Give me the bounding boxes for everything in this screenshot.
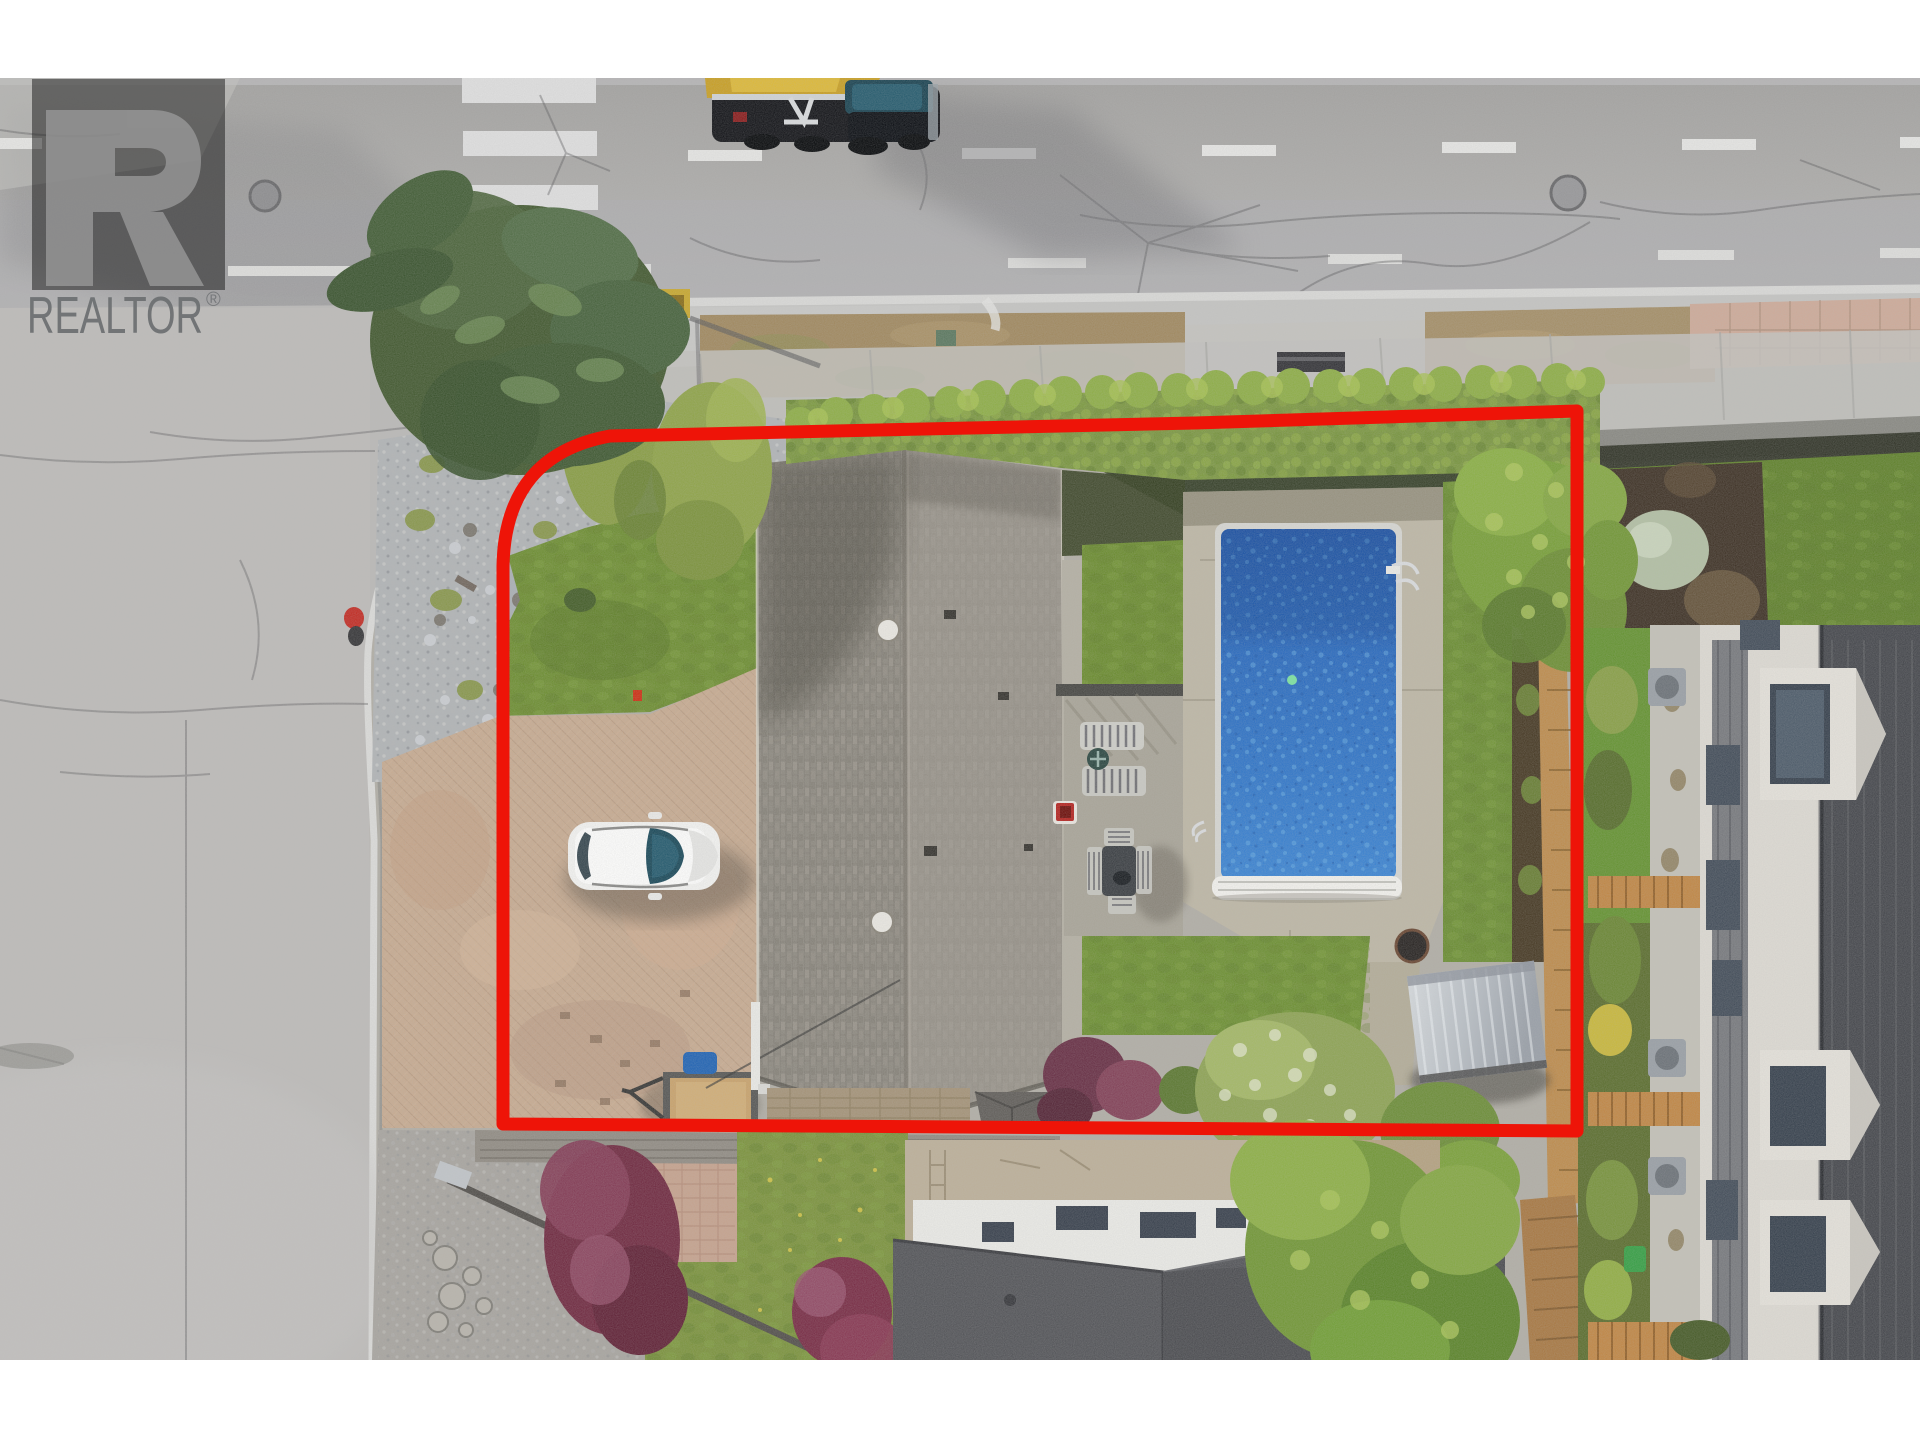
svg-text:®: ® [206, 289, 221, 311]
svg-text:REALTOR: REALTOR [27, 287, 203, 345]
